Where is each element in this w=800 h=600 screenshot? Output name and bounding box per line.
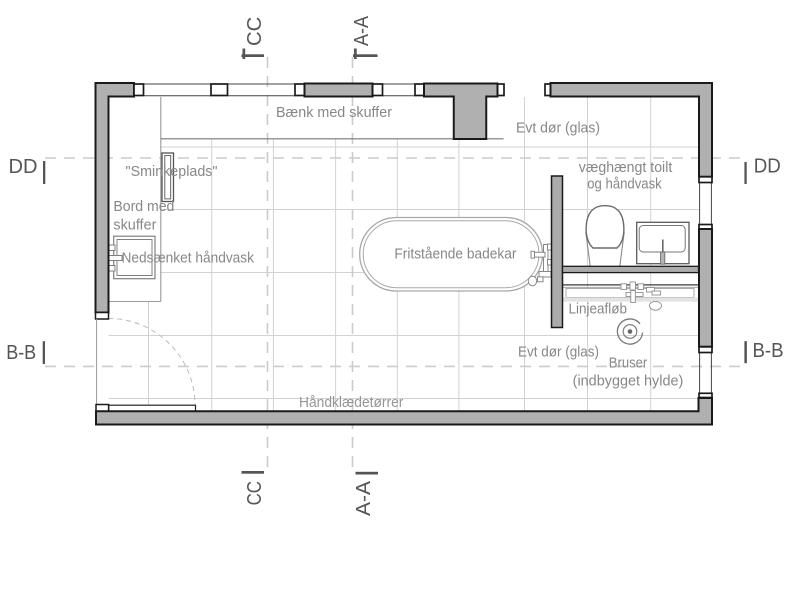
svg-text:DD: DD	[9, 155, 38, 178]
svg-text:Bænk med skuffer: Bænk med skuffer	[276, 105, 392, 121]
svg-text:Bruser: Bruser	[609, 356, 648, 372]
svg-text:Bord med: Bord med	[113, 199, 174, 215]
svg-text:A-A: A-A	[350, 16, 373, 46]
svg-text:(indbygget hylde): (indbygget hylde)	[573, 373, 684, 389]
svg-text:A-A: A-A	[352, 481, 375, 516]
svg-text:Linjeafløb: Linjeafløb	[569, 302, 628, 318]
svg-text:"Sminkeplads": "Sminkeplads"	[126, 164, 218, 180]
svg-text:Nedsænket håndvask: Nedsænket håndvask	[122, 251, 255, 267]
svg-text:DD: DD	[754, 155, 781, 178]
svg-text:CC: CC	[243, 481, 266, 506]
svg-text:B-B: B-B	[753, 339, 784, 362]
svg-text:Evt dør (glas): Evt dør (glas)	[516, 121, 600, 137]
svg-text:B-B: B-B	[6, 341, 36, 364]
svg-text:og håndvask: og håndvask	[587, 177, 662, 193]
svg-text:Håndklædetørrer: Håndklædetørrer	[299, 395, 404, 411]
svg-text:væghængt toilt: væghængt toilt	[579, 160, 673, 176]
svg-text:CC: CC	[243, 17, 266, 46]
svg-text:Evt dør (glas): Evt dør (glas)	[518, 345, 599, 361]
svg-text:skuffer: skuffer	[113, 218, 156, 234]
svg-text:Fritstående badekar: Fritstående badekar	[394, 246, 516, 262]
